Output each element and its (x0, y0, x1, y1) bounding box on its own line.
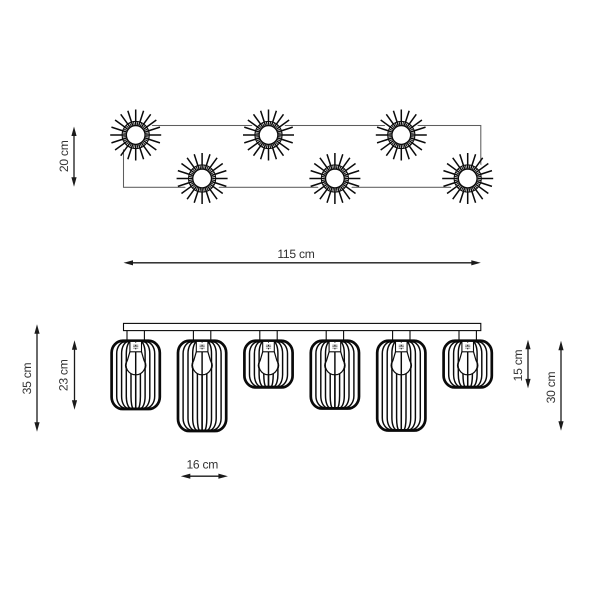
svg-text:23 cm: 23 cm (57, 359, 71, 391)
svg-text:16 cm: 16 cm (186, 457, 218, 471)
svg-text:15 cm: 15 cm (511, 349, 525, 381)
svg-text:20 cm: 20 cm (57, 140, 71, 172)
svg-text:35 cm: 35 cm (20, 362, 34, 394)
svg-text:30 cm: 30 cm (544, 371, 558, 403)
svg-text:115 cm: 115 cm (277, 247, 314, 261)
